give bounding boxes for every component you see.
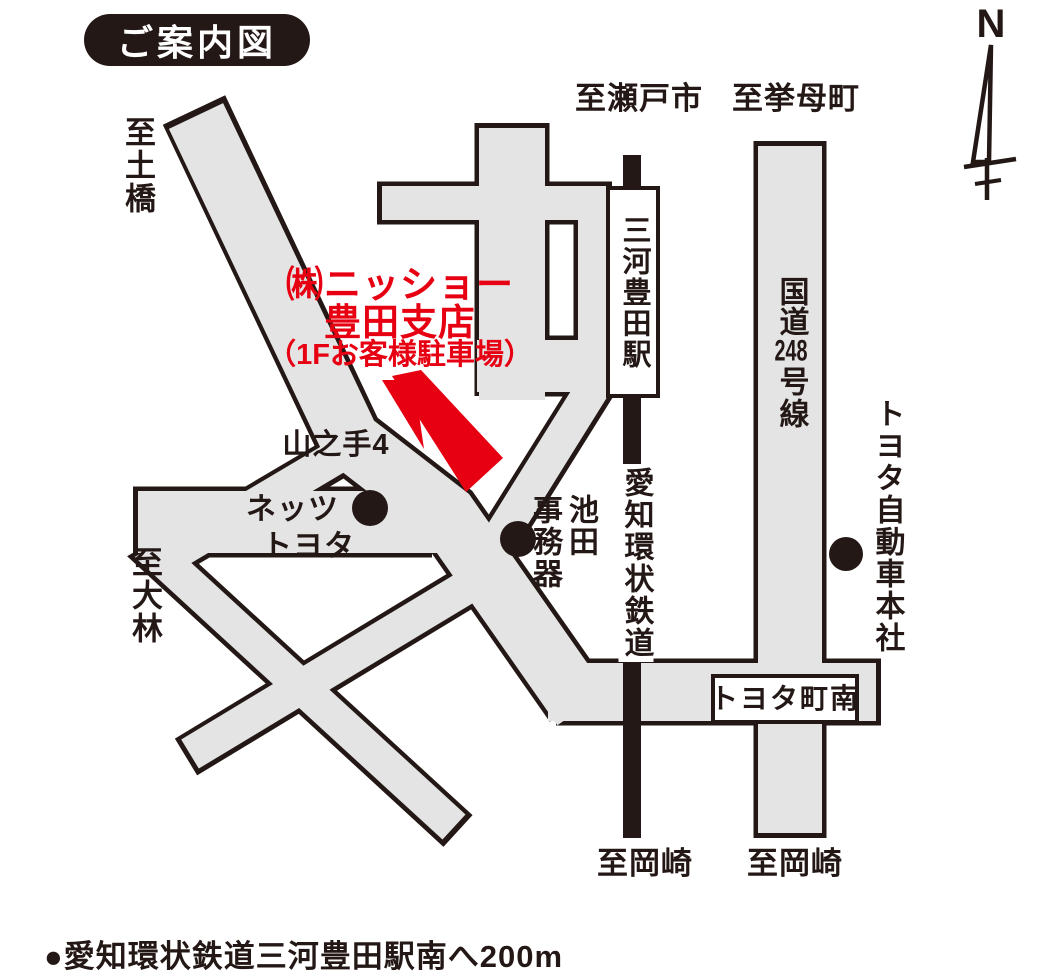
aichi-loop-railway-label: 愛知環状鉄道 (619, 464, 654, 662)
destination-label: ㈱ニッショー 豊田支店 （1Fお客様駐車場） (258, 266, 542, 371)
compass-north-label: N (977, 2, 1006, 46)
route248-part2: 248 (775, 336, 808, 366)
footnote-distance-note: ●愛知環状鉄道三河豊田駅南へ200m (44, 940, 563, 974)
ikeda-office-label: 池田 事務器 (528, 494, 597, 590)
netz-toyota-label-line2: トヨタ (262, 530, 355, 563)
route248-part3: 号線 (775, 366, 808, 430)
compass-needle-icon (964, 45, 1016, 200)
destination-company-line2: 豊田支店 (258, 304, 542, 342)
mikawa-toyota-station-label: 三河豊田駅 (617, 215, 649, 370)
map-title-badge: ご案内図 (84, 14, 310, 66)
guide-map: ご案内図 N ㈱ニッショー 豊田支店 （1Fお客様駐車場） 至瀬戸市 至挙母町 … (0, 0, 1060, 980)
map-title: ご案内図 (117, 14, 277, 66)
mikawa-toyota-station-box: 三河豊田駅 (606, 186, 660, 398)
netz-toyota-dot (352, 490, 388, 526)
route248-part1: 国道 (775, 276, 808, 336)
direction-to-okazaki-left: 至岡崎 (597, 847, 693, 881)
intersection-toyotacho-minami-label: トヨタ町南 (710, 684, 860, 715)
intersection-toyotacho-minami-box: トヨタ町南 (711, 674, 859, 724)
ikeda-office-col-left: 事務器 (528, 494, 561, 590)
direction-to-obayashi: 至大林 (127, 546, 161, 645)
toyota-hq-dot (829, 537, 863, 571)
route248-label: 国道248号線 (775, 276, 808, 430)
destination-parking-note: （1Fお客様駐車場） (258, 341, 542, 371)
direction-to-koromo: 至挙母町 (732, 82, 860, 116)
direction-to-tsuchihashi: 至土橋 (120, 116, 154, 215)
direction-to-seto: 至瀬戸市 (575, 82, 703, 116)
ikeda-office-col-right: 池田 (564, 494, 597, 590)
netz-toyota-label-line1: ネッツ (246, 493, 339, 526)
direction-to-okazaki-right: 至岡崎 (747, 847, 843, 881)
destination-company-line1: ㈱ニッショー (258, 266, 542, 304)
toyota-hq-label: トヨタ自動車本社 (871, 398, 904, 654)
intersection-yamanote4-label: 山之手4 (282, 430, 389, 462)
